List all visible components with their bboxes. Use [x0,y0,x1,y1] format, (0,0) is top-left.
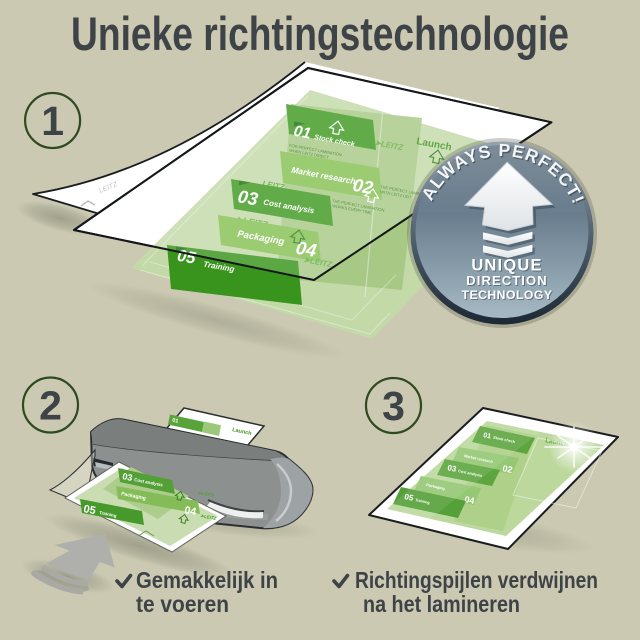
svg-text:05: 05 [82,503,96,517]
svg-text:3: 3 [382,383,405,429]
svg-text:na het lamineren: na het lamineren [363,591,520,617]
svg-text:te voeren: te voeren [136,591,229,617]
svg-text:UNIQUE: UNIQUE [471,257,542,275]
svg-text:03: 03 [122,471,134,483]
svg-text:TECHNOLOGY: TECHNOLOGY [462,288,553,302]
svg-text:02: 02 [502,463,514,475]
svg-text:04: 04 [464,494,476,506]
svg-text:01: 01 [172,418,179,425]
svg-text:Unieke richtingstechnologie: Unieke richtingstechnologie [71,7,569,60]
svg-text:DIRECTION: DIRECTION [466,273,547,288]
svg-text:Richtingspijlen verdwijnen: Richtingspijlen verdwijnen [355,567,598,593]
svg-text:1: 1 [41,98,64,144]
svg-text:Gemakkelijk in: Gemakkelijk in [136,567,278,593]
svg-text:2: 2 [39,383,62,429]
